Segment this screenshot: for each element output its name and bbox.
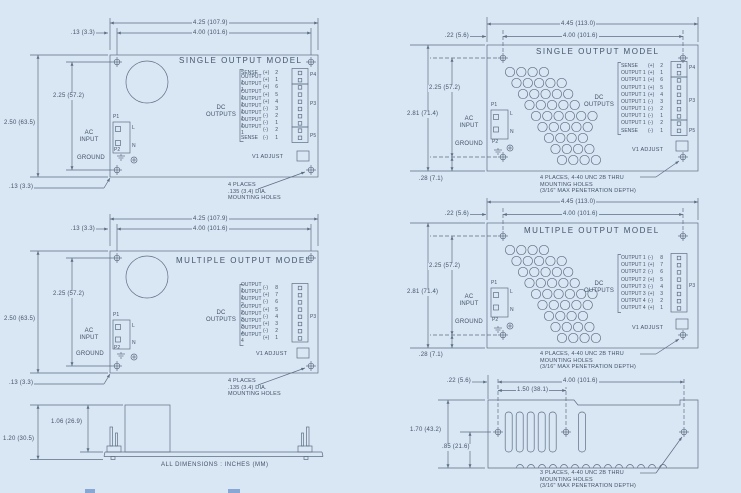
- pin-polarity: (+): [648, 77, 658, 83]
- pin-polarity: (-): [263, 135, 273, 141]
- pin-number: 8: [658, 255, 663, 261]
- pin-name: SENSE: [621, 128, 648, 134]
- p2-label: P2: [114, 148, 120, 154]
- pin-row: OUTPUT 1(+)5: [621, 84, 663, 91]
- dim-height-overall: 2.81 (71.4): [406, 111, 439, 118]
- dim-width-overall: 4.45 (113.0): [560, 21, 596, 28]
- pin-name: OUTPUT 3: [621, 291, 648, 297]
- pin-list-multiple-chassis: OUTPUT 1(-)8OUTPUT 1(+)7OUTPUT 2(-)6OUTP…: [621, 254, 663, 312]
- pin-row: OUTPUT 1(+)6: [621, 77, 663, 84]
- pin-polarity: (-): [648, 106, 658, 112]
- dim-edge-top: .13 (3.3): [66, 30, 96, 37]
- pin-list-multiple-front: OUTPUT 1(-)8OUTPUT 1(+)7OUTPUT 2(-)6OUTP…: [241, 284, 278, 342]
- pin-number: 1: [273, 335, 278, 341]
- transformer-block: [125, 405, 170, 452]
- pin-polarity: (-): [263, 328, 273, 334]
- pin-name: OUTPUT 4: [621, 298, 648, 304]
- figure-side-profile-linework: [30, 405, 323, 460]
- dc-outputs-label: DC OUTPUTS: [582, 95, 616, 109]
- pin-number: 2: [658, 63, 663, 69]
- pin-polarity: (-): [263, 314, 273, 320]
- dc-outputs-label: DC OUTPUTS: [204, 105, 238, 119]
- pin-polarity: (-): [263, 113, 273, 119]
- p1-label: P1: [491, 281, 497, 287]
- pin-number: 6: [273, 299, 278, 305]
- connector-p3: [671, 77, 687, 120]
- dim-edge-bottom: .28 (7.1): [414, 352, 444, 359]
- pin-polarity: (-): [648, 113, 658, 119]
- dim-height-holes: 2.25 (57.2): [428, 85, 461, 92]
- ground-label: GROUND: [455, 319, 483, 326]
- neutral-terminal-label: N: [132, 144, 136, 150]
- pin-number: 1: [273, 120, 278, 126]
- pin-number: 7: [658, 262, 663, 268]
- figure-title: SINGLE OUTPUT MODEL: [536, 47, 652, 56]
- ground-label: GROUND: [455, 141, 483, 148]
- pin-row: SENSE(-)1: [241, 134, 278, 141]
- pin-name: OUTPUT 1: [621, 92, 648, 98]
- dim-width-holes: 4.00 (101.6): [192, 30, 229, 37]
- dim-edge-top: .13 (3.3): [66, 226, 96, 233]
- pin-number: 4: [658, 284, 663, 290]
- pin-name: OUTPUT 1: [621, 120, 648, 126]
- pin-number: 1: [658, 113, 663, 119]
- v1-adjust-pot: [297, 348, 309, 358]
- pin-number: 2: [273, 328, 278, 334]
- v1-adjust-pot: [676, 141, 688, 151]
- pin-number: 2: [273, 127, 278, 133]
- figure-title: MULTIPLE OUTPUT MODEL: [176, 256, 304, 265]
- p3-label: P3: [310, 315, 316, 321]
- pin-polarity: (-): [648, 128, 658, 134]
- dim-edge-left: .22 (5.6): [440, 211, 470, 218]
- ac-input-label: AC INPUT: [456, 294, 482, 308]
- line-terminal-label: L: [132, 324, 135, 330]
- pin-row: OUTPUT 1(-)2: [621, 120, 663, 127]
- dim-edge-bottom: .13 (3.3): [8, 380, 34, 387]
- pin-row: OUTPUT 4(-)2: [621, 298, 663, 305]
- p4-label: P4: [310, 73, 316, 79]
- pin-name: OUTPUT 1: [621, 255, 648, 261]
- pin-polarity: (+): [263, 70, 273, 76]
- pin-row: OUTPUT 2(-)6: [621, 269, 663, 276]
- pin-polarity: (+): [648, 262, 658, 268]
- pin-name: OUTPUT 2: [621, 269, 648, 275]
- line-terminal-label: L: [510, 112, 513, 118]
- pin-row: OUTPUT 1(-)3: [621, 98, 663, 105]
- pin-row: OUTPUT 1(+)4: [621, 91, 663, 98]
- pin-row: OUTPUT 4(+)1: [241, 335, 278, 342]
- pin-polarity: (+): [263, 292, 273, 298]
- pin-polarity: (+): [648, 277, 658, 283]
- dim-edge-left: .22 (5.6): [442, 378, 472, 385]
- pin-number: 5: [658, 85, 663, 91]
- p5-label: P5: [689, 129, 695, 135]
- pin-row: OUTPUT 3(+)3: [621, 290, 663, 297]
- pin-row: OUTPUT 1(+)1: [621, 70, 663, 77]
- pin-name: OUTPUT 2: [621, 277, 648, 283]
- dim-width-overall: 4.25 (107.9): [192, 216, 229, 223]
- scan-artifact: [228, 489, 240, 493]
- pin-number: 6: [273, 84, 278, 90]
- pin-number: 1: [273, 135, 278, 141]
- p2-label: P2: [492, 318, 498, 324]
- dim-height-overall: 1.70 (43.2): [409, 427, 442, 434]
- figure-title: MULTIPLE OUTPUT MODEL: [524, 226, 650, 235]
- v1-adjust-pot: [297, 151, 309, 161]
- dim-width-overall: 4.45 (113.0): [560, 199, 596, 206]
- pin-name: OUTPUT 1: [621, 262, 648, 268]
- pin-polarity: (-): [648, 284, 658, 290]
- p3-label: P3: [689, 99, 695, 105]
- pin-row: SENSE(-)1: [621, 127, 663, 134]
- pin-number: 2: [273, 70, 278, 76]
- dim-height-overall: 2.81 (71.4): [406, 289, 439, 296]
- scan-artifact: [85, 489, 95, 493]
- figure-title: SINGLE OUTPUT MODEL: [179, 56, 295, 65]
- pin-polarity: (+): [648, 291, 658, 297]
- dim-hole-height: .85 (21.6): [441, 444, 471, 451]
- dim-overall-height: 1.20 (30.5): [2, 436, 35, 443]
- figure-slotted-side-linework: [438, 375, 698, 473]
- dimensions-footnote: ALL DIMENSIONS : INCHES (MM): [161, 462, 268, 469]
- v1-adjust-label: V1 ADJUST: [632, 147, 663, 154]
- pin-number: 2: [658, 298, 663, 304]
- pin-polarity: (+): [648, 63, 658, 69]
- dim-width-holes: 4.00 (101.6): [562, 211, 599, 218]
- pin-number: 2: [658, 106, 663, 112]
- ground-label: GROUND: [76, 351, 104, 358]
- pin-polarity: (+): [648, 92, 658, 98]
- dim-height-overall: 2.50 (63.5): [3, 120, 36, 127]
- pin-polarity: (+): [648, 305, 658, 311]
- pin-number: 6: [658, 269, 663, 275]
- pin-polarity: (+): [263, 321, 273, 327]
- ac-input-label: AC INPUT: [76, 328, 102, 342]
- pin-name: OUTPUT 1: [621, 106, 648, 112]
- pin-polarity: (+): [648, 85, 658, 91]
- pin-row: OUTPUT 1(-)2: [241, 127, 278, 134]
- fan-opening: [126, 61, 168, 103]
- pin-polarity: (+): [263, 335, 273, 341]
- dim-height-holes: 2.25 (57.2): [428, 263, 461, 270]
- pin-number: 3: [658, 99, 663, 105]
- pin-name: OUTPUT 1: [621, 70, 648, 76]
- pin-polarity: (-): [648, 120, 658, 126]
- dim-width-holes: 4.00 (101.6): [562, 33, 599, 40]
- pin-name: OUTPUT 1: [621, 77, 648, 83]
- neutral-terminal-label: N: [510, 308, 514, 314]
- pin-polarity: (+): [263, 307, 273, 313]
- line-terminal-label: L: [510, 290, 513, 296]
- pin-number: 3: [273, 321, 278, 327]
- line-terminal-label: L: [132, 126, 135, 132]
- pin-list-single-front: SENSE(+)2OUTPUT 1(+)1OUTPUT 1(+)6OUTPUT …: [241, 69, 278, 141]
- ac-input-label: AC INPUT: [456, 116, 482, 130]
- pin-polarity: (-): [648, 99, 658, 105]
- pin-number: 2: [273, 113, 278, 119]
- connector-p3: [292, 84, 308, 127]
- pin-polarity: (-): [263, 285, 273, 291]
- pin-row: OUTPUT 1(+)7: [621, 262, 663, 269]
- dc-outputs-label: DC OUTPUTS: [204, 310, 238, 324]
- mounting-note: 4 PLACES, 4-40 UNC 2B THRU MOUNTING HOLE…: [540, 175, 636, 195]
- p2-label: P2: [114, 346, 120, 352]
- pin-number: 5: [658, 277, 663, 283]
- neutral-terminal-label: N: [132, 341, 136, 347]
- pin-number: 5: [273, 307, 278, 313]
- mounting-note: 4 PLACES .135 (3.4) DIA. MOUNTING HOLES: [228, 378, 281, 398]
- dim-height-holes: 2.25 (57.2): [52, 93, 85, 100]
- connector-p5: [671, 120, 687, 136]
- ground-label: GROUND: [77, 155, 105, 162]
- mounting-note: 4 PLACES, 4-40 UNC 2B THRU MOUNTING HOLE…: [540, 351, 636, 371]
- vent-pattern: [505, 67, 600, 164]
- pin-polarity: (-): [263, 127, 273, 133]
- dim-width-holes: 4.00 (101.6): [192, 226, 229, 233]
- mounting-note: 4 PLACES .135 (3.4) DIA. MOUNTING HOLES: [228, 182, 281, 202]
- dim-height-holes: 2.25 (57.2): [52, 291, 85, 298]
- p1-label: P1: [491, 103, 497, 109]
- p5-label: P5: [310, 134, 316, 140]
- ac-input-label: AC INPUT: [76, 130, 102, 144]
- pin-name: OUTPUT 1: [621, 99, 648, 105]
- connector-p5: [292, 127, 308, 143]
- pin-number: 1: [658, 128, 663, 134]
- dim-hole-spacing: 1.50 (38.1): [516, 387, 549, 394]
- mounting-note: 3 PLACES, 4-40 UNC 2B THRU MOUNTING HOLE…: [540, 470, 636, 490]
- p3-label: P3: [310, 102, 316, 108]
- dim-width-holes: 4.00 (101.6): [562, 378, 599, 385]
- pin-polarity: (-): [648, 298, 658, 304]
- pin-number: 2: [658, 120, 663, 126]
- dim-edge-bottom: .28 (7.1): [414, 176, 444, 183]
- fan-opening: [126, 256, 168, 298]
- dim-edge-bottom: .13 (3.3): [8, 184, 34, 191]
- pin-number: 1: [658, 305, 663, 311]
- vent-scallops: [517, 465, 667, 468]
- pin-number: 1: [658, 70, 663, 76]
- pin-number: 4: [658, 92, 663, 98]
- v1-adjust-label: V1 ADJUST: [256, 351, 287, 358]
- pin-number: 3: [658, 291, 663, 297]
- dc-outputs-label: DC OUTPUTS: [582, 281, 616, 295]
- dim-width-overall: 4.25 (107.9): [192, 20, 229, 27]
- p2-label: P2: [492, 140, 498, 146]
- pin-polarity: (+): [263, 92, 273, 98]
- pin-polarity: (-): [648, 269, 658, 275]
- pin-polarity: (-): [263, 299, 273, 305]
- pin-name: SENSE: [621, 63, 648, 69]
- v1-adjust-label: V1 ADJUST: [252, 154, 283, 161]
- dim-height-overall: 2.50 (63.5): [3, 316, 36, 323]
- neutral-terminal-label: N: [510, 130, 514, 136]
- p1-label: P1: [113, 313, 119, 319]
- pin-polarity: (+): [648, 70, 658, 76]
- pin-number: 5: [273, 92, 278, 98]
- pin-name: SENSE: [241, 135, 263, 141]
- pin-list-single-chassis: SENSE(+)2OUTPUT 1(+)1OUTPUT 1(+)6OUTPUT …: [621, 62, 663, 134]
- v1-adjust-label: V1 ADJUST: [632, 325, 663, 332]
- pin-number: 4: [273, 99, 278, 105]
- pin-row: OUTPUT 1(-)8: [621, 254, 663, 261]
- pin-name: OUTPUT 1: [621, 113, 648, 119]
- drawing-sheet: SINGLE OUTPUT MODEL 4.25 (107.9) 4.00 (1…: [0, 0, 741, 493]
- pin-number: 3: [273, 106, 278, 112]
- pin-row: OUTPUT 3(-)4: [621, 283, 663, 290]
- p1-label: P1: [113, 115, 119, 121]
- pin-row: SENSE(+)2: [621, 62, 663, 69]
- pin-number: 8: [273, 285, 278, 291]
- pin-polarity: (+): [263, 99, 273, 105]
- pin-number: 6: [658, 77, 663, 83]
- p3-label: P3: [689, 284, 695, 290]
- pin-name: OUTPUT 4: [241, 332, 263, 344]
- pin-polarity: (+): [263, 84, 273, 90]
- pin-polarity: (+): [263, 77, 273, 83]
- p4-label: P4: [689, 66, 695, 72]
- dim-component-height: 1.06 (26.9): [50, 419, 83, 426]
- pin-row: OUTPUT 2(+)5: [621, 276, 663, 283]
- pin-name: OUTPUT 3: [621, 284, 648, 290]
- pin-number: 1: [273, 77, 278, 83]
- pin-row: OUTPUT 4(+)1: [621, 305, 663, 312]
- pin-name: OUTPUT 1: [621, 85, 648, 91]
- v1-adjust-pot: [676, 319, 688, 329]
- pin-name: OUTPUT 4: [621, 305, 648, 311]
- pin-number: 4: [273, 314, 278, 320]
- pin-row: OUTPUT 1(-)1: [621, 113, 663, 120]
- pin-polarity: (-): [263, 106, 273, 112]
- pin-row: OUTPUT 1(-)2: [621, 106, 663, 113]
- pin-polarity: (-): [648, 255, 658, 261]
- dim-edge-left: .22 (5.6): [440, 33, 470, 40]
- pin-number: 7: [273, 292, 278, 298]
- pin-polarity: (-): [263, 120, 273, 126]
